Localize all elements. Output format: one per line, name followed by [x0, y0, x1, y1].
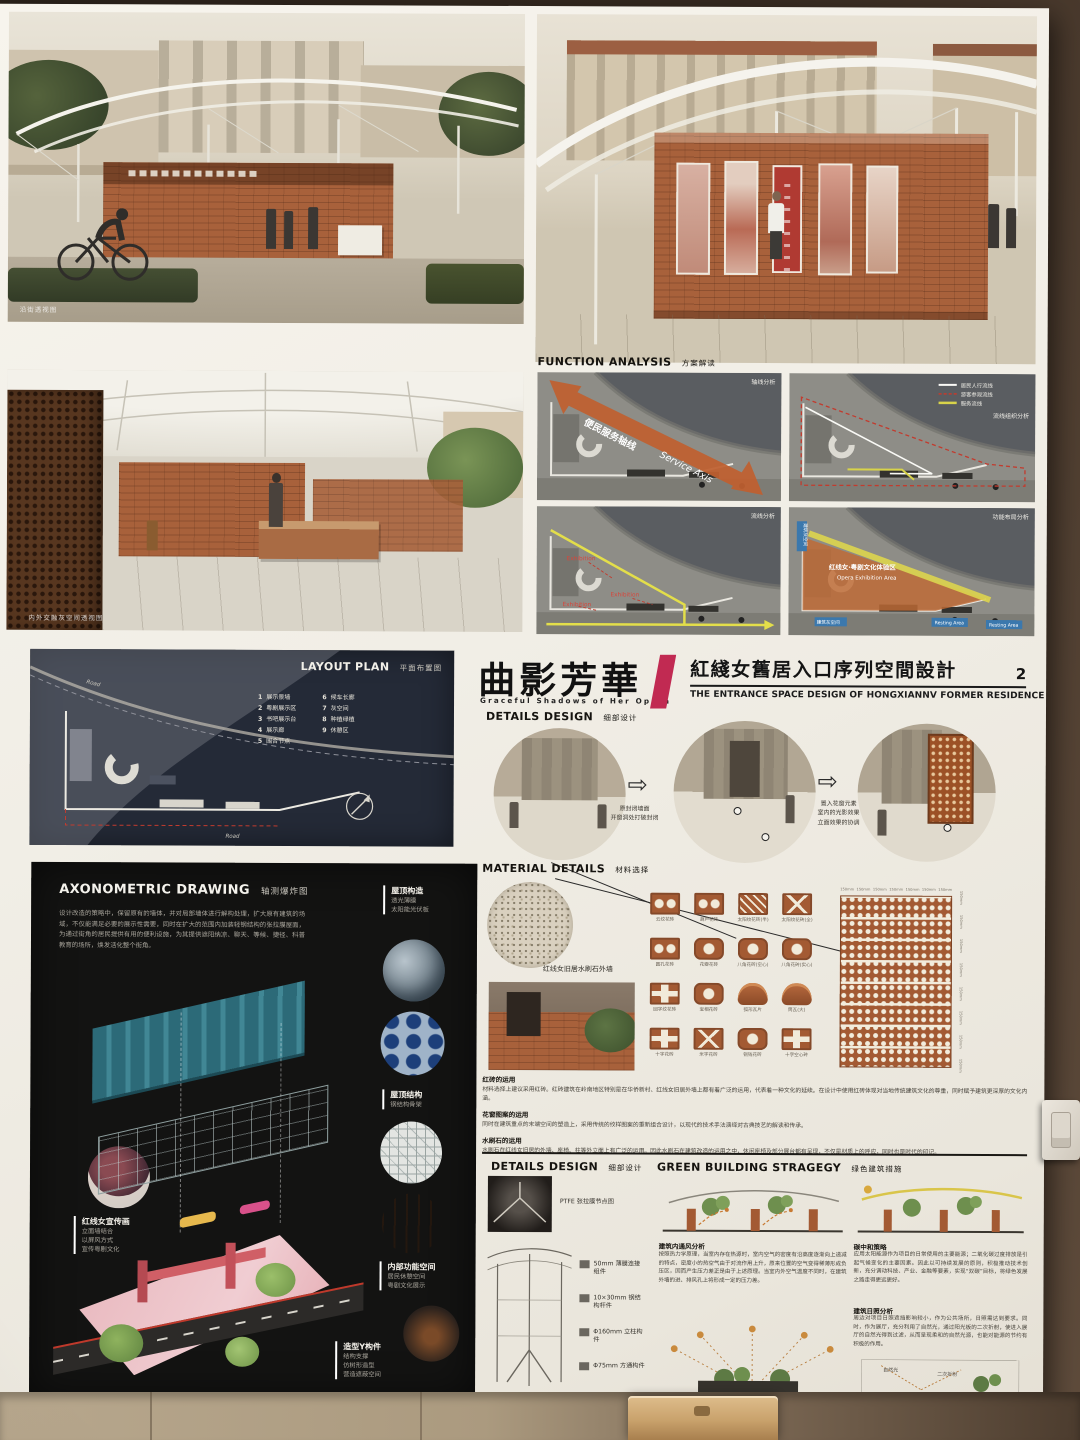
diagram-label: 二次折射 — [937, 1371, 957, 1378]
analysis-panel-circulation: 居民人行流线 游客参观流线 服务流线 流线组织分析 — [789, 373, 1036, 502]
brick-unit: 花瓣花砖 — [687, 938, 731, 983]
diagram-label: 自然光 — [883, 1367, 898, 1374]
legend-item: 居民人行流线 — [961, 381, 994, 389]
sample-label: 红线女旧居水刷石外墙 — [543, 964, 613, 974]
project-title-group: 紅綫女舊居入口序列空間設計 2 THE ENTRANCE SPACE DESIG… — [690, 655, 1026, 701]
paragraph-body: 同时在建筑重点的末端空间的塑造上，采用传统的纹样图案的重新组合设计，以现代的技术… — [482, 1121, 1027, 1132]
layout-plan-title-cn: 平面布置图 — [400, 663, 443, 672]
legend-item: 游客参观流线 — [961, 390, 994, 398]
person-silhouette — [269, 483, 283, 527]
perforated-brick-screen — [6, 390, 103, 630]
node-label: 10×30mm 钢结构杆件 — [579, 1294, 645, 1302]
layout-plan-drawing: Road Road — [29, 649, 454, 847]
red-slash-mark — [650, 655, 676, 709]
brick-unit: 十字花砖 — [642, 1028, 686, 1073]
axonometric-title-cn: 轴测爆炸图 — [261, 887, 309, 897]
poster-board: 沿街透视图 FUNCTION — [0, 4, 1049, 1417]
pattern-field — [839, 895, 952, 1067]
brick-unit: 米字花砖 — [686, 1028, 730, 1073]
resting-area-tag: Resting Area — [989, 623, 1019, 629]
roof-construction-label: 屋顶构造 透光薄膜 太阳能光伏板 — [383, 885, 429, 914]
floor — [0, 1392, 1080, 1440]
exhibition-tag: Exhibition — [567, 556, 596, 562]
floor-tile-joint — [150, 1392, 152, 1440]
layout-plan-title: LAYOUT PLAN — [301, 660, 390, 673]
paragraph-body: 材料选择上建议采用红砖。红砖建筑在岭南地区特别是在华侨新村、红线女旧居外墙上都有… — [482, 1086, 1027, 1106]
sun-path-diagram — [658, 1323, 846, 1402]
y-member-label: 造型Y构件 结构支撑 仿树形造型 营造遮蔽空间 — [335, 1341, 381, 1380]
panel-corner-label: 流线分析 — [751, 512, 775, 520]
axonometric-header: AXONOMETRIC DRAWING 轴测爆炸图 — [59, 882, 308, 898]
resting-area-tag: Resting Area — [935, 620, 965, 626]
interior-space-label: 内部功能空间 居民休憩空间 粤剧文化展示 — [379, 1261, 435, 1290]
lattice-screen — [930, 736, 972, 822]
floor — [102, 556, 522, 632]
paragraph-heading: 水刷石的运用 — [482, 1135, 1027, 1147]
green-left-column: 建筑内通风分析 按照热力学原理，当室内存在热源时，室内空气的密度有沿高度逐渐向上… — [658, 1177, 847, 1402]
closed-brick-wall — [522, 738, 598, 800]
details-nodes-header: DETAILS DESIGN 细部设计 — [491, 1160, 642, 1174]
marker-dot — [761, 833, 769, 841]
function-analysis-title-cn: 方案解读 — [682, 359, 716, 368]
artwork-panel — [676, 163, 710, 275]
carbon-diagram — [854, 1177, 1028, 1238]
brick-unit: 云纹花砖 — [643, 893, 687, 938]
pedestrian-silhouette — [266, 209, 276, 249]
person-head — [272, 473, 281, 483]
marker-dot — [943, 824, 951, 832]
main-title-en: Graceful Shadows of Her Opera — [480, 696, 671, 706]
pavilion-render — [536, 14, 1038, 364]
details-design-title: DETAILS DESIGN — [486, 710, 593, 723]
roof-structure-label: 屋顶结构 钢结构骨架 — [382, 1089, 422, 1109]
area-label-en: Opera Exhibition Area — [837, 575, 897, 581]
canopy-structure-drawing — [483, 1240, 576, 1392]
axo-tree — [255, 1263, 295, 1297]
legend-item: 5围合节点 — [258, 736, 296, 747]
analysis-panel-program: 红线女·粤剧文化体验区 Opera Exhibition Area Restin… — [788, 507, 1035, 636]
interior-detail-photo — [382, 1193, 442, 1253]
details-nodes-column: PTFE 张拉膜节点图 50mm 薄膜连接组件 10×30mm 钢结构杆件 Φ1… — [483, 1176, 646, 1401]
interior-render: 内外交融灰空间透视图 — [6, 370, 523, 632]
details-design-title-cn: 细部设计 — [603, 713, 637, 722]
axonometric-panel: AXONOMETRIC DRAWING 轴测爆炸图 设计改造的策略中，保留原有的… — [29, 862, 477, 1400]
node-label: Φ160mm 立柱构件 — [579, 1328, 645, 1336]
artwork-panel — [866, 166, 898, 274]
visitor-figure-legs — [770, 231, 782, 259]
photo-plant — [585, 1008, 635, 1052]
legend-item: 服务流线 — [961, 399, 983, 407]
legend-item: 4展示廊 — [258, 725, 296, 736]
easel-crossbar — [628, 1396, 778, 1440]
solar-panel-detail-photo — [380, 1011, 444, 1075]
node-label: Φ75mm 方通构件 — [579, 1362, 645, 1370]
details-nodes-title: DETAILS DESIGN — [491, 1160, 598, 1173]
detail-step-circle-1 — [493, 728, 626, 861]
road-label: Road — [225, 834, 240, 840]
pavilion-sign — [128, 170, 258, 177]
visitor-figure-head — [772, 191, 781, 201]
brick-pattern-panel: 150mm150mm150mm150mm150mm150mm150mm 150m… — [839, 887, 970, 1076]
figure — [877, 810, 886, 836]
project-title-en: THE ENTRANCE SPACE DESIGN OF HONGXIANNV … — [690, 690, 1026, 701]
outlet-rocker — [1051, 1112, 1071, 1148]
details-design-header: DETAILS DESIGN 细部设计 — [486, 710, 637, 724]
layout-plan-panel: Road Road LAYOUT PLAN 平面布置图 1展示景墙 2粤剧展示区… — [29, 649, 454, 847]
green-strategy-header: GREEN BUILDING STRAGEGY 绿色建筑措施 — [657, 1161, 902, 1175]
photo-window — [507, 992, 541, 1036]
easel-peg — [694, 1406, 710, 1416]
legend-item: 6候车长廊 — [322, 692, 354, 703]
sunlight-body: 周边对项目日照遮挡影响较小，作为公共场所，日照需达到要求。同时，作为展厅，充分利… — [853, 1314, 1027, 1349]
carbon-body: 应用太阳能源作为项目的日常使用的主要能源；二氧化碳过度排放是引起气候变化的主要因… — [853, 1250, 1027, 1285]
material-details-title: MATERIAL DETAILS — [482, 862, 605, 876]
legend-column: 1展示景墙 2粤剧展示区 3书吧展示台 4展示廊 5围合节点 — [258, 692, 297, 747]
granitic-plaster-sample — [487, 882, 573, 968]
residence-photo — [488, 982, 634, 1071]
green-right-column: 碳中和策略 应用太阳能源作为项目的日常使用的主要能源；二氧化碳过度排放是引起气候… — [853, 1177, 1028, 1402]
brick-unit: 铜钱花砖 — [730, 1028, 774, 1073]
brick-unit: 圆孔花砖 — [643, 938, 687, 983]
node-lines — [488, 1176, 552, 1232]
street-render: 沿街透视图 — [8, 12, 525, 324]
node-label: 50mm 薄膜连接组件 — [580, 1260, 646, 1268]
legend-item: 8种植绿植 — [322, 714, 354, 725]
legend-item: 2粤剧展示区 — [258, 703, 296, 714]
panel-corner-label: 功能布局分析 — [993, 513, 1029, 521]
pedestrian-silhouette — [988, 204, 999, 248]
pedestrian-silhouette — [308, 207, 318, 249]
membrane-detail-photo — [383, 939, 445, 1001]
exhibit-detail-photo — [403, 1305, 459, 1361]
brick-unit-grid: 云纹花砖 葫芦花砖 太阳纹花砖(半) 太阳纹花砖(全) 圆孔花砖 花瓣花砖 八角… — [642, 893, 819, 1074]
brick-unit: 太阳纹花砖(全) — [775, 893, 819, 938]
window-opening — [730, 741, 760, 797]
exhibition-tag: Exhibition — [610, 592, 639, 598]
wall-outlet — [1042, 1100, 1080, 1160]
photo-of-presentation-board: 沿街透视图 FUNCTION — [0, 0, 1080, 1440]
axonometric-title: AXONOMETRIC DRAWING — [59, 882, 250, 898]
panel-corner-label: 轴线分析 — [751, 378, 775, 386]
pedestrian-silhouette — [1006, 208, 1016, 248]
promo-label: 红线女宣传画 立面墙结合 以屏风方式 宣传粤剧文化 — [74, 1216, 130, 1255]
hedge — [426, 264, 524, 304]
green-strategy-title: GREEN BUILDING STRAGEGY — [657, 1161, 841, 1175]
axo-roof-membrane — [92, 981, 305, 1101]
function-analysis-title: FUNCTION ANALYSIS — [537, 355, 671, 369]
brick-unit: 八角花砖(空心) — [731, 938, 775, 983]
node-label: PTFE 张拉膜节点图 — [560, 1196, 614, 1205]
step1-note: 原封闭墙面 开窗洞处打破封闭 — [596, 804, 674, 823]
page-number: 2 — [1016, 665, 1027, 683]
paragraph-heading: 红砖的运用 — [482, 1074, 1027, 1086]
exhibition-tag: Exhibition — [562, 602, 591, 608]
layout-plan-header: LAYOUT PLAN 平面布置图 — [301, 660, 443, 674]
brick-unit: 宝相花砖 — [687, 983, 731, 1028]
legend-item: 7灰空间 — [322, 703, 354, 714]
artwork-panel — [724, 161, 758, 275]
cyclist-silhouette — [38, 200, 178, 287]
area-label-cn: 红线女·粤剧文化体验区 — [829, 562, 896, 571]
brick-unit: 十字空心砖 — [774, 1028, 818, 1073]
floor-tile-joint — [420, 1392, 422, 1440]
analysis-panel-flow: Exhibition Exhibition Exhibition 流线分析 — [536, 506, 781, 635]
legend-item: 1展示景墙 — [258, 692, 296, 703]
marker-dot — [734, 807, 742, 815]
ventilation-body: 按照热力学原理，当室内存在热源时，室内空气的密度有沿高度逐渐向上递减的特点，密度… — [658, 1251, 846, 1286]
arrow-icon: ⇨ — [628, 770, 648, 798]
function-analysis-grid: 便民服务轴线 Service Axis 轴线分析 居民人行流线 游客参观流线 服… — [536, 372, 1035, 636]
project-title-cn: 紅綫女舊居入口序列空間設計 — [690, 655, 957, 683]
render-caption: 内外交融灰空间透视图 — [28, 612, 103, 622]
brick-unit: 葫芦花砖 — [687, 893, 731, 938]
axo-wall — [137, 1260, 147, 1302]
axo-structure-grid — [98, 1085, 328, 1195]
material-details-title-cn: 材料选择 — [615, 865, 649, 874]
detail-step-circle-3 — [857, 723, 996, 862]
child-silhouette — [147, 520, 158, 550]
brick-unit: 回字纹花砖 — [643, 983, 687, 1028]
details-nodes-title-cn: 细部设计 — [608, 1163, 642, 1172]
dim-row-top: 150mm150mm150mm150mm150mm150mm150mm — [840, 887, 952, 891]
axo-tree — [225, 1337, 259, 1367]
brick-unit: 弧形瓦片 — [731, 983, 775, 1028]
material-details-header: MATERIAL DETAILS 材料选择 — [482, 862, 649, 876]
axo-tree — [99, 1324, 143, 1362]
axo-banner — [240, 1200, 270, 1215]
figure — [786, 795, 795, 823]
ventilation-diagram — [659, 1177, 847, 1238]
detail-step-circle-2 — [673, 721, 816, 864]
pedestrian-silhouette — [284, 211, 293, 249]
membrane-node-photo — [488, 1176, 552, 1232]
arrow-icon: ⇨ — [818, 767, 838, 795]
legend-item: 3书吧展示台 — [258, 714, 296, 725]
ventilation-heading: 建筑内通风分析 — [659, 1241, 705, 1251]
brick-unit: 筒瓦(大) — [775, 983, 819, 1028]
axo-banner — [180, 1211, 216, 1228]
dim-col-right: 150mm150mm150mm150mm150mm150mm150mm150mm — [953, 896, 968, 1068]
layout-plan-legend: 1展示景墙 2粤剧展示区 3书吧展示台 4展示廊 5围合节点 6候车长廊 7灰空… — [258, 692, 438, 748]
green-strategy-title-cn: 绿色建筑措施 — [851, 1164, 902, 1173]
function-analysis-header: FUNCTION ANALYSIS 方案解读 — [537, 355, 715, 369]
axonometric-intro: 设计改造的策略中，保留原有的墙体，并对局部墙体进行解构处理，扩大原有建筑的场域，… — [59, 908, 305, 951]
paragraph-heading: 花窗图案的运用 — [482, 1109, 1027, 1121]
artwork-panel — [818, 163, 852, 275]
axo-wall — [225, 1243, 235, 1289]
visitor-figure — [768, 203, 784, 233]
legend-item: 9休憩区 — [322, 725, 354, 736]
title-block: 曲影芳華 Graceful Shadows of Her Opera 紅綫女舊居… — [478, 652, 1026, 714]
panel-corner-label: 流线组织分析 — [993, 412, 1029, 420]
brick-unit: 八角花砖(实心) — [775, 938, 819, 983]
material-paragraphs: 红砖的运用 材料选择上建议采用红砖。红砖建筑在岭南地区特别是在华侨新村、红线女旧… — [482, 1074, 1027, 1158]
counter-block — [338, 225, 382, 255]
steel-truss-detail-photo — [380, 1121, 442, 1183]
figure — [509, 802, 518, 828]
brick-unit: 太阳纹花砖(半) — [731, 893, 775, 938]
legend-column: 6候车长廊 7灰空间 8种植绿植 9休憩区 — [322, 692, 355, 747]
analysis-panel-axis: 便民服务轴线 Service Axis 轴线分析 — [537, 372, 782, 501]
render-caption: 沿街透视图 — [20, 304, 58, 314]
